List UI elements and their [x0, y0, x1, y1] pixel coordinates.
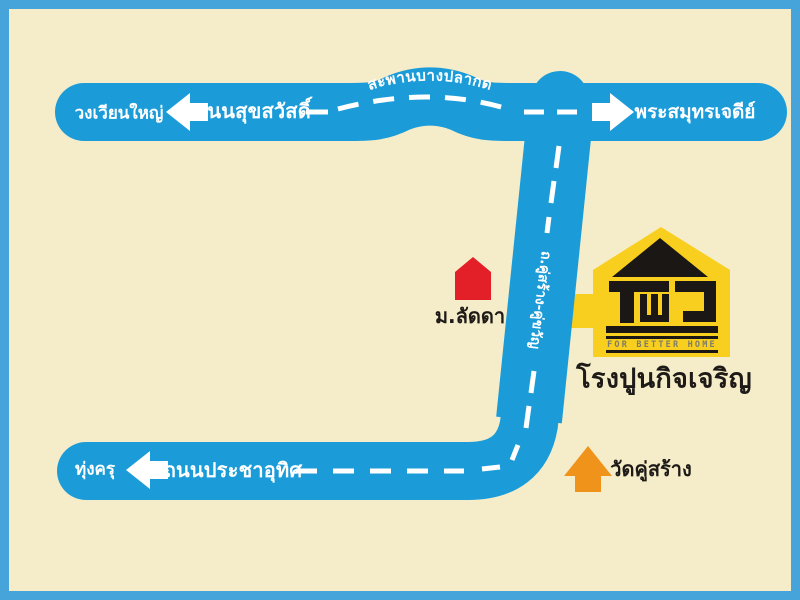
destination-thung-khru: ทุ่งครุ	[75, 456, 115, 483]
lane-dash	[531, 371, 534, 393]
prachauthit-road-label: ถนนประชาอุทิศ	[164, 454, 303, 486]
village-house-icon	[455, 257, 491, 300]
lane-dash	[551, 181, 554, 203]
lane-dash	[482, 467, 500, 469]
logo-tagline: FOR BETTER HOME	[607, 340, 717, 350]
map-canvas: สะพานบางปลากด FOR BETTER HOME	[0, 0, 800, 600]
company-name-label: โรงปูนกิจเจริญ	[576, 357, 752, 400]
lane-dash	[556, 146, 559, 168]
temple-arrow-icon	[564, 446, 612, 492]
destination-phra-samut-chedi: พระสมุทรเจดีย์	[635, 97, 756, 127]
temple-label: วัดคู่สร้าง	[610, 453, 692, 485]
village-label: ม.ลัดดา	[435, 300, 505, 332]
logo-letter-W-base	[640, 315, 669, 322]
lane-dash	[547, 217, 549, 233]
logo-letter-T-stem	[620, 292, 634, 323]
logo-rule	[606, 350, 718, 353]
logo-rule	[606, 326, 718, 333]
logo-letter-T	[609, 281, 669, 292]
route-map: สะพานบางปลากด FOR BETTER HOME	[0, 0, 800, 600]
suksawat-road-label: ถนนสุขสวัสดิ์	[195, 95, 311, 127]
logo-rule	[606, 336, 718, 339]
logo-letter-C-arm	[683, 311, 716, 322]
company-logo: FOR BETTER HOME	[593, 227, 730, 357]
lane-dash	[526, 406, 529, 428]
destination-wongwian-yai: วงเวียนใหญ่	[75, 100, 164, 127]
